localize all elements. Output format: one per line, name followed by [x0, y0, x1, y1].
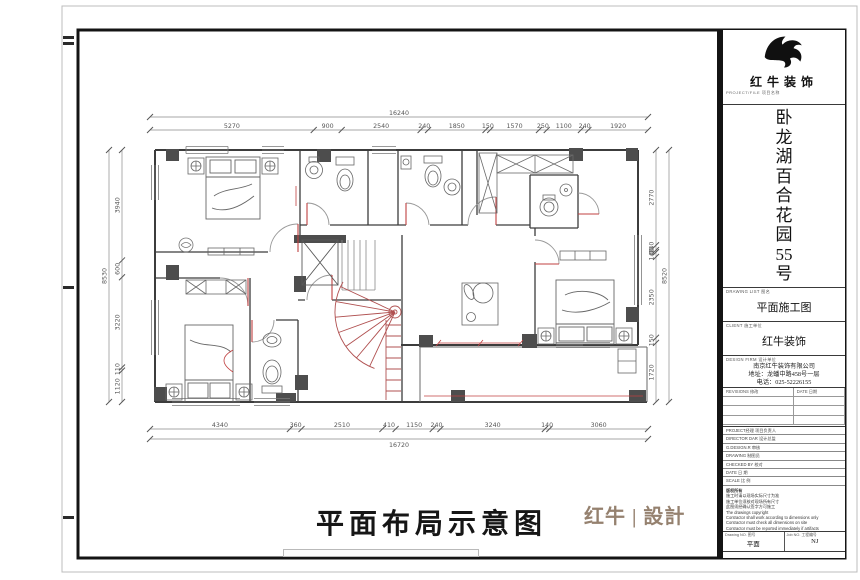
dimension-label: 900 [322, 123, 334, 130]
signature-row: CHECKED BY 校对 [723, 461, 845, 469]
notes-section: 版权所有 施工时请以现场实际尺寸为准施工单位须核对现场所有尺寸此图须经确认签字方… [723, 486, 845, 532]
revisions-date-label: DATE 日期 [794, 388, 845, 397]
dimension-label: 3220 [115, 314, 122, 330]
guest-bed [185, 325, 233, 402]
footer-fold-bar [283, 549, 479, 557]
dimension-label: 8520 [662, 268, 669, 284]
revisions-table: REVISIONS 修改 DATE 日期 [723, 388, 845, 427]
company-contact-lines: 南京红牛装饰有限公司地址：龙蟠中路458号一层电话：025-52226155 [723, 363, 845, 387]
signature-row: SCALE 比 例 [723, 477, 845, 485]
master-bed [206, 157, 260, 219]
dimension-label: 410 [383, 422, 395, 429]
revision-cell [794, 416, 845, 425]
powder-room-fixtures [540, 184, 572, 216]
dimensions-left: 3940600322011011208530 [102, 147, 126, 405]
drawing-title-section: DRAWING LIST 图名 平面施工图 [723, 288, 845, 322]
dimension-label: 140 [649, 248, 656, 260]
wardrobe-closets [186, 153, 573, 294]
dimensions-right: 277014060140235015017208520 [649, 147, 673, 405]
signature-row: PROJECT经理 项目负责人 [723, 427, 845, 435]
project-name-char: 龙 [776, 128, 793, 148]
nightstand-lamp-icons [188, 158, 278, 174]
dimension-label: 110 [115, 363, 122, 375]
dimension-label: 150 [482, 123, 494, 130]
dimension-label: 1570 [507, 123, 523, 130]
interior-walls [155, 150, 578, 402]
sheet-title: 平面布局示意图 [316, 502, 547, 542]
drawing-list-label: DRAWING LIST 图名 [723, 288, 845, 295]
logo-caption: PROJECT/FILE 项目名称 [723, 90, 845, 96]
revision-cell [723, 406, 794, 415]
project-name-vertical: 卧龙湖百合花园55号 [723, 105, 845, 288]
design-firm-label: DESIGN FIRM 设计单位 [723, 356, 845, 363]
project-name-char: 55 [776, 245, 793, 265]
client-label: CLIENT 施工单位 [723, 322, 845, 329]
company-brand-text: 红牛装饰 [723, 73, 845, 90]
job-no-cell: Job NO. 工程编号 NJ [785, 532, 846, 551]
straight-stair [342, 240, 375, 290]
client-value: 红牛装饰 [723, 333, 845, 349]
project-name-char: 湖 [776, 147, 793, 167]
brand-logo-text: 红牛 | 設計 [584, 500, 685, 529]
dimensions-bottom: 4340360251041011502403240140306016720 [147, 422, 651, 449]
company-line: 地址：龙蟠中路458号一层 [723, 371, 845, 379]
signature-rows: PROJECT经理 项目负责人DIRECTOR DAR 设计总监G.DESIGN… [723, 427, 845, 486]
dimension-label: 2770 [649, 190, 656, 206]
signature-row: DRAWING 制图员 [723, 452, 845, 460]
dimension-label: 1850 [449, 123, 465, 130]
dimension-label: 240 [418, 123, 430, 130]
notes-lines: 施工时请以现场实际尺寸为准施工单位须核对现场所有尺寸此图须经确认签字方可施工Th… [726, 493, 842, 531]
title-block: 红牛装饰 PROJECT/FILE 项目名称 卧龙湖百合花园55号 DRAWIN… [723, 30, 845, 558]
dimension-label: 3240 [485, 422, 501, 429]
project-name-char: 百 [776, 167, 793, 187]
revision-cell [723, 416, 794, 425]
dimension-label: 360 [290, 422, 302, 429]
signature-row: DIRECTOR DAR 设计总监 [723, 435, 845, 443]
project-name-char: 卧 [776, 108, 793, 128]
bathroom1-fixtures [306, 157, 355, 191]
revisions-header: REVISIONS 修改 DATE 日期 [723, 388, 845, 397]
bedroom3-nightstands [538, 328, 632, 344]
revision-cell [794, 397, 845, 406]
project-name-char: 花 [776, 206, 793, 226]
design-firm-section: DESIGN FIRM 设计单位 南京红牛装饰有限公司地址：龙蟠中路458号一层… [723, 356, 845, 388]
fold-marks [63, 36, 74, 519]
drawing-no-value: 平面 [723, 538, 784, 548]
dimension-label: 1120 [115, 378, 122, 394]
company-logo-section: 红牛装饰 PROJECT/FILE 项目名称 [723, 30, 845, 105]
dimension-label: 2510 [334, 422, 350, 429]
bathroom4-fixtures [262, 333, 282, 393]
dimension-label: 4340 [212, 422, 228, 429]
dimension-label: 16720 [389, 442, 409, 449]
bathroom2-fixtures [401, 156, 460, 195]
dimension-label: 8530 [102, 268, 109, 284]
guest-nightstands [166, 384, 252, 400]
drawing-no-cell: Drawing NO. 图号 平面 [723, 532, 785, 551]
dimension-label: 3940 [115, 197, 122, 213]
revisions-label: REVISIONS 修改 [723, 388, 794, 397]
project-name-char: 园 [776, 225, 793, 245]
dimension-label: 1720 [649, 364, 656, 380]
dimension-label: 2350 [649, 289, 656, 305]
exterior-walls [155, 150, 647, 402]
project-name-char: 合 [776, 186, 793, 206]
dimension-label: 1100 [556, 123, 572, 130]
drawing-sheet: { "title_block": { "brand": "红牛装饰", "bra… [0, 0, 860, 580]
revisions-empty-rows [723, 397, 845, 425]
dimension-label: 240 [579, 123, 591, 130]
revision-cell [794, 406, 845, 415]
dimension-label: 600 [115, 263, 122, 275]
dimension-label: 240 [431, 422, 443, 429]
dimension-label: 140 [541, 422, 553, 429]
desk-and-chair [462, 283, 498, 325]
client-section: CLIENT 施工单位 红牛装饰 [723, 322, 845, 356]
project-name-char: 号 [776, 264, 793, 284]
dimension-label: 150 [649, 334, 656, 346]
note-line: Contractor must be reported immediately … [726, 526, 842, 531]
dimension-label: 3060 [591, 422, 607, 429]
dimension-label: 16240 [389, 110, 409, 117]
drawing-number-row: Drawing NO. 图号 平面 Job NO. 工程编号 NJ [723, 532, 845, 552]
bedroom3-bed [556, 280, 614, 344]
drawing-title: 平面施工图 [723, 299, 845, 315]
revision-cell [723, 397, 794, 406]
signature-row: DATE 日 期 [723, 469, 845, 477]
company-line: 南京红牛装饰有限公司 [723, 363, 845, 371]
dimension-label: 1150 [406, 422, 422, 429]
dimensions-top: 5270900254024018501501570250110024019201… [147, 110, 651, 133]
signature-row: G.DESIGN.R 审核 [723, 444, 845, 452]
window-symbols [152, 147, 642, 406]
dimension-label: 2540 [373, 123, 389, 130]
balcony-cabinet [618, 349, 636, 373]
dresser [560, 251, 606, 260]
bull-logo-icon [752, 32, 816, 72]
dimension-label: 5270 [224, 123, 240, 130]
dimension-label: 250 [537, 123, 549, 130]
dimension-label: 1920 [610, 123, 626, 130]
structural-columns [154, 148, 646, 402]
plant-icon [179, 238, 193, 252]
company-line: 电话：025-52226155 [723, 379, 845, 387]
job-no-value: NJ [785, 538, 846, 545]
